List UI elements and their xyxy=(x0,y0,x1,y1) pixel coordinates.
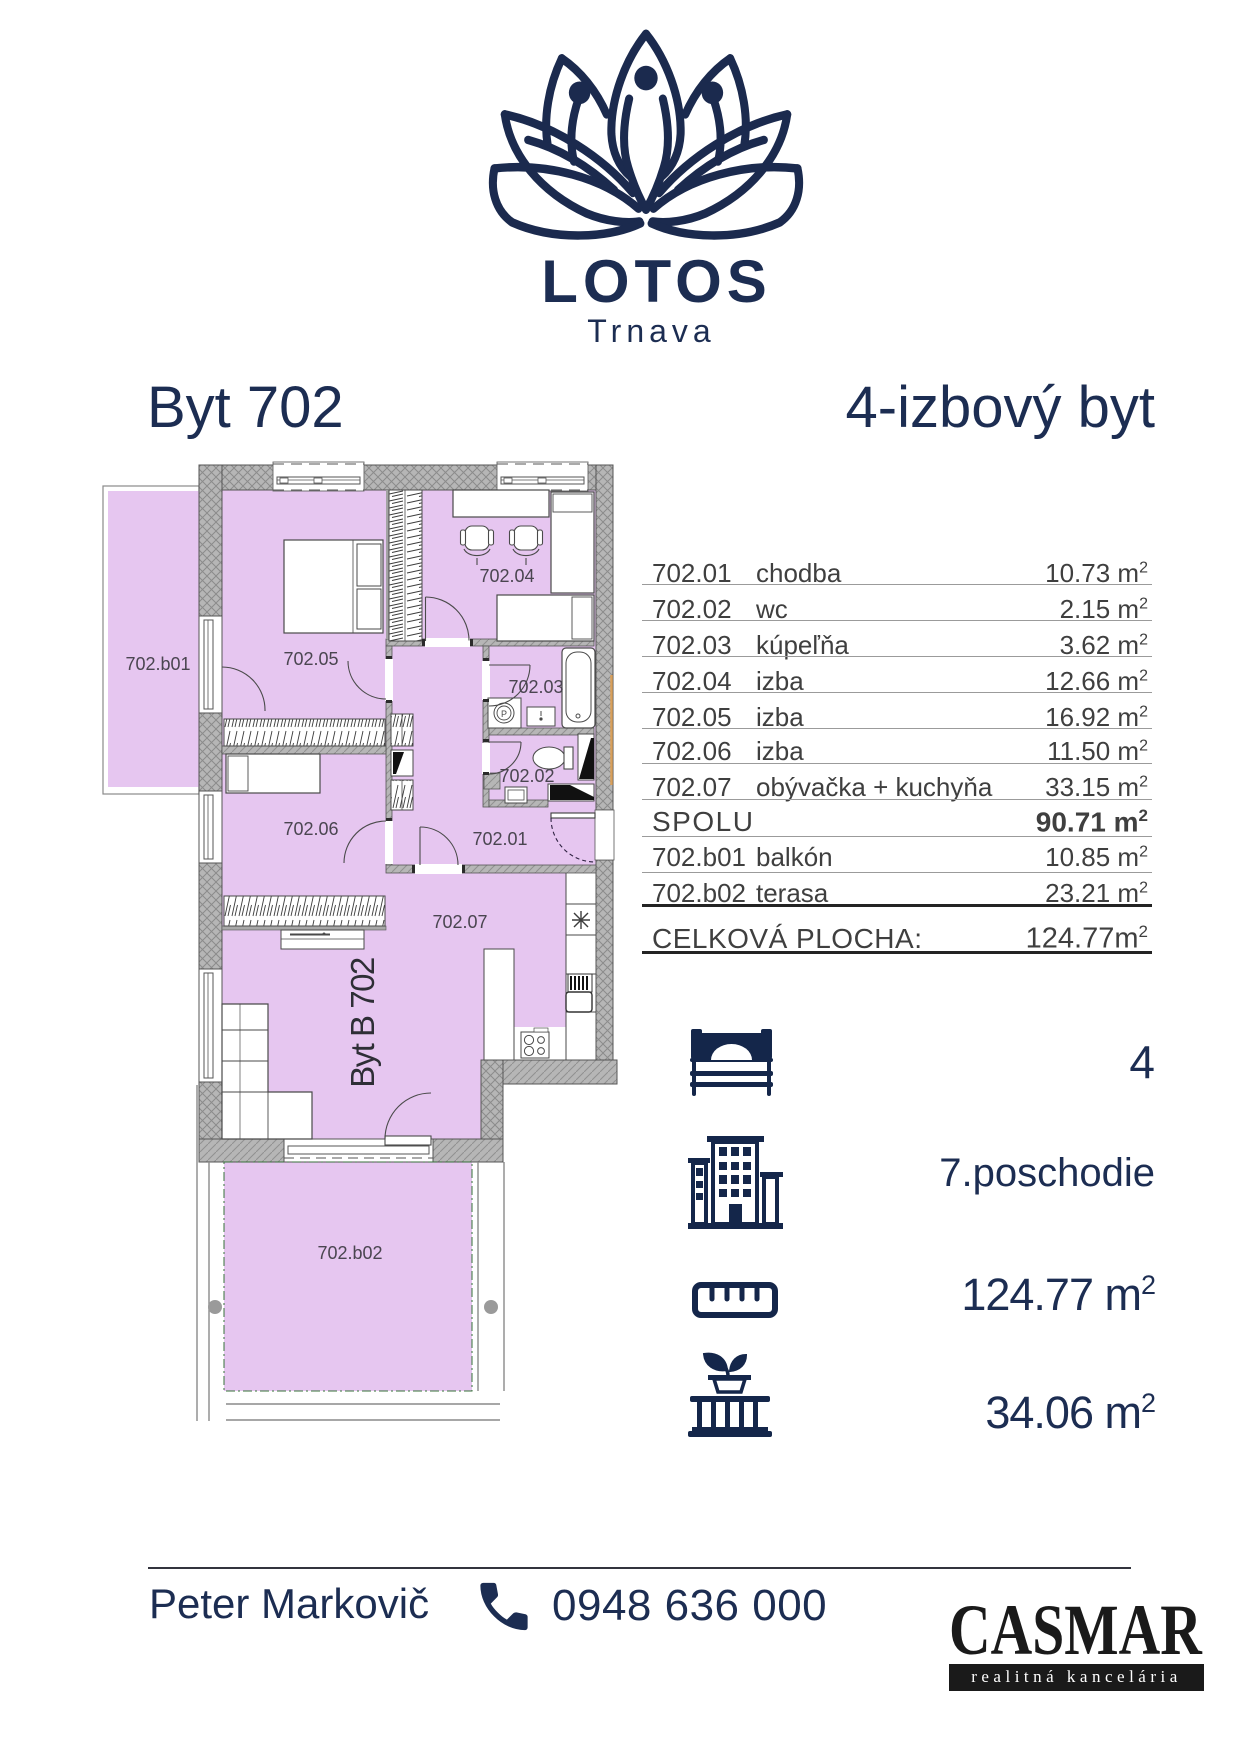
svg-text:702.02: 702.02 xyxy=(499,766,554,786)
svg-text:702.04: 702.04 xyxy=(479,566,534,586)
svg-text:702.01: 702.01 xyxy=(472,829,527,849)
svg-text:702.07: 702.07 xyxy=(432,912,487,932)
svg-text:702.b02: 702.b02 xyxy=(317,1243,382,1263)
svg-text:P: P xyxy=(501,709,507,719)
svg-text:702.03: 702.03 xyxy=(508,677,563,697)
svg-text:Byt B 702: Byt B 702 xyxy=(344,958,381,1088)
svg-text:702.06: 702.06 xyxy=(283,819,338,839)
svg-text:702.b01: 702.b01 xyxy=(125,654,190,674)
svg-text:702.05: 702.05 xyxy=(283,649,338,669)
